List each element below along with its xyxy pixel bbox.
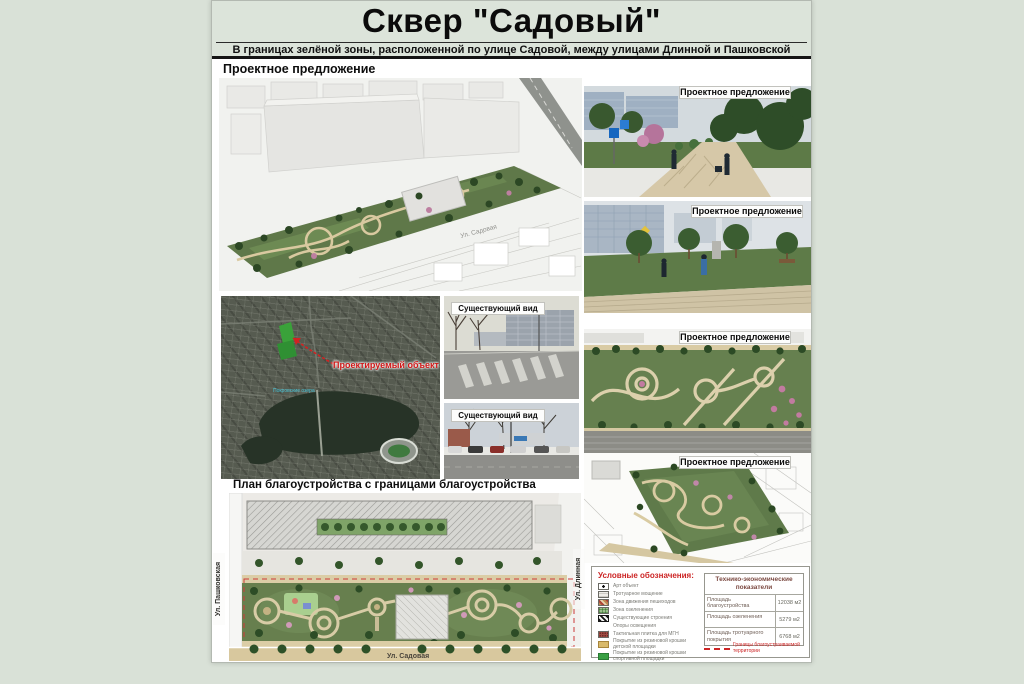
greening-icon — [598, 607, 609, 614]
caption-proposal-1: Проектное предложение — [679, 86, 791, 99]
legend-panel: Условные обозначения: Арт объект Тротуар… — [591, 566, 810, 658]
legend-item-label: Покрытие из резиновой крошки спортивной … — [613, 651, 700, 662]
photo-existing-2: Существующий вид — [444, 403, 579, 479]
photo-existing-1: Существующий вид — [444, 296, 579, 399]
caption-proposal-3: Проектное предложение — [679, 331, 791, 344]
legend-item: Опоры освещения — [598, 623, 700, 630]
tep-row-name: Площадь благоустройства — [705, 595, 775, 612]
street-label-sadovaya: Ул. Садовая — [387, 653, 429, 660]
park-band — [242, 579, 574, 647]
legend-items: Арт объект Тротуарное мощение Зона движе… — [598, 583, 700, 662]
existing-buildings-icon — [598, 615, 609, 622]
legend-item-label: Покрытие из резиновой крошки детской пло… — [613, 639, 700, 650]
lake-name-label: Покровские озера — [273, 388, 315, 394]
legend-item: Тактильная плитка для МГН — [598, 631, 700, 638]
road-sign — [609, 128, 619, 138]
tep-table-title: Технико-экономические показатели — [705, 574, 803, 595]
header-bar — [212, 56, 811, 59]
table-row: Площадь благоустройства 12038 м2 — [705, 595, 803, 613]
legend-item: Зона озеленения — [598, 607, 700, 614]
caption-proposal-2: Проектное предложение — [691, 205, 803, 218]
left-street — [229, 493, 242, 661]
tep-row-value: 5279 м2 — [775, 612, 803, 627]
street-label-dlinnaya: Ул. Длинная — [573, 549, 585, 609]
page-subtitle: В границах зелёной зоны, расположенной п… — [212, 44, 811, 56]
render-park-aerial — [584, 329, 811, 453]
caption-proposal-4: Проектное предложение — [679, 456, 791, 469]
road — [584, 431, 811, 453]
building-block — [247, 501, 561, 549]
legend-item-label: Зона озеленения — [613, 608, 653, 614]
section-plan-heading: План благоустройства с границами благоус… — [233, 479, 536, 491]
caption-existing-1: Существующий вид — [451, 302, 545, 315]
boundary-dashed-icon — [704, 648, 730, 650]
art-object-icon — [598, 583, 609, 590]
legend-item: Арт объект — [598, 583, 700, 590]
red-building — [448, 429, 470, 447]
section-proposal-heading: Проектное предложение — [223, 62, 375, 76]
project-object-label: Проектируемый объект — [333, 360, 439, 370]
tep-row-name: Площадь озеленения — [705, 612, 775, 627]
render-walkway-view — [584, 86, 811, 197]
legend-item-label: Тактильная плитка для МГН — [613, 632, 679, 638]
page-title: Сквер "Садовый" — [212, 2, 811, 40]
parked-cars — [448, 446, 570, 453]
legend-title: Условные обозначения: — [598, 571, 694, 580]
legend-item-label: Существующие строения — [613, 616, 672, 622]
rubber-sport-icon — [598, 653, 609, 660]
lighting-line-icon — [598, 623, 609, 630]
legend-item: Покрытие из резиновой крошки детской пло… — [598, 639, 700, 650]
tep-row-value: 12038 м2 — [775, 595, 803, 612]
upper-lawn — [242, 551, 562, 575]
caption-existing-2: Существующий вид — [451, 409, 545, 422]
roads — [221, 296, 436, 396]
render-aerial-overview: Ул. Садовая — [219, 78, 582, 291]
boundary-note: Границы благоустраиваемой территории — [704, 643, 808, 654]
central-plaza — [396, 595, 448, 639]
rubber-kids-icon — [598, 641, 609, 648]
legend-item-label: Арт объект — [613, 584, 639, 590]
legend-item-label: Тротуарное мощение — [613, 592, 663, 598]
legend-item: Существующие строения — [598, 615, 700, 622]
tep-table: Технико-экономические показатели Площадь… — [704, 573, 804, 646]
legend-item: Зона движения пешеходов — [598, 599, 700, 606]
street-label-pashkovskaya: Ул. Пашковская — [213, 553, 225, 625]
legend-item-label: Опоры освещения — [613, 624, 656, 630]
tactile-paving-icon — [598, 631, 609, 638]
paving-icon — [598, 591, 609, 598]
monument — [712, 241, 721, 259]
legend-item-label: Зона движения пешеходов — [613, 600, 676, 606]
boundary-note-label: Границы благоустраиваемой территории — [733, 643, 808, 654]
playground — [284, 593, 318, 615]
table-row: Площадь озеленения 5279 м2 — [705, 612, 803, 628]
title-divider — [216, 42, 807, 43]
stadium — [381, 439, 417, 463]
presentation-board: Сквер "Садовый" В границах зелёной зоны,… — [211, 0, 812, 663]
bench — [779, 259, 795, 263]
master-plan: Ул. Садовая — [229, 493, 581, 661]
legend-item: Тротуарное мощение — [598, 591, 700, 598]
legend-item: Покрытие из резиновой крошки спортивной … — [598, 651, 700, 662]
pedestrian-zone-icon — [598, 599, 609, 606]
render-corner-aerial — [584, 453, 811, 563]
satellite-map: Проектируемый объект Покровские озера — [221, 296, 440, 479]
